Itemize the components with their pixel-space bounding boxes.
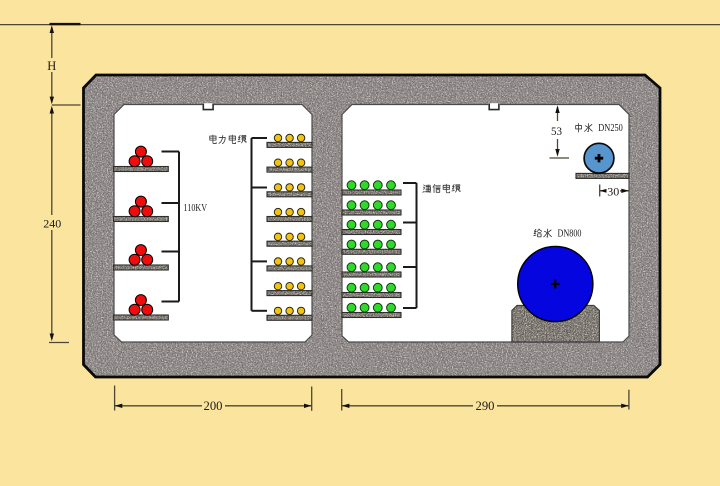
- svg-text:240: 240: [43, 217, 61, 231]
- svg-text:53: 53: [551, 124, 562, 138]
- svg-text:200: 200: [204, 399, 223, 413]
- svg-text:DN250: DN250: [598, 123, 623, 134]
- svg-text:110KV: 110KV: [184, 202, 208, 214]
- svg-text:30: 30: [607, 185, 619, 199]
- svg-text:DN800: DN800: [558, 229, 582, 240]
- svg-text:290: 290: [476, 399, 495, 413]
- svg-text:H: H: [47, 59, 56, 73]
